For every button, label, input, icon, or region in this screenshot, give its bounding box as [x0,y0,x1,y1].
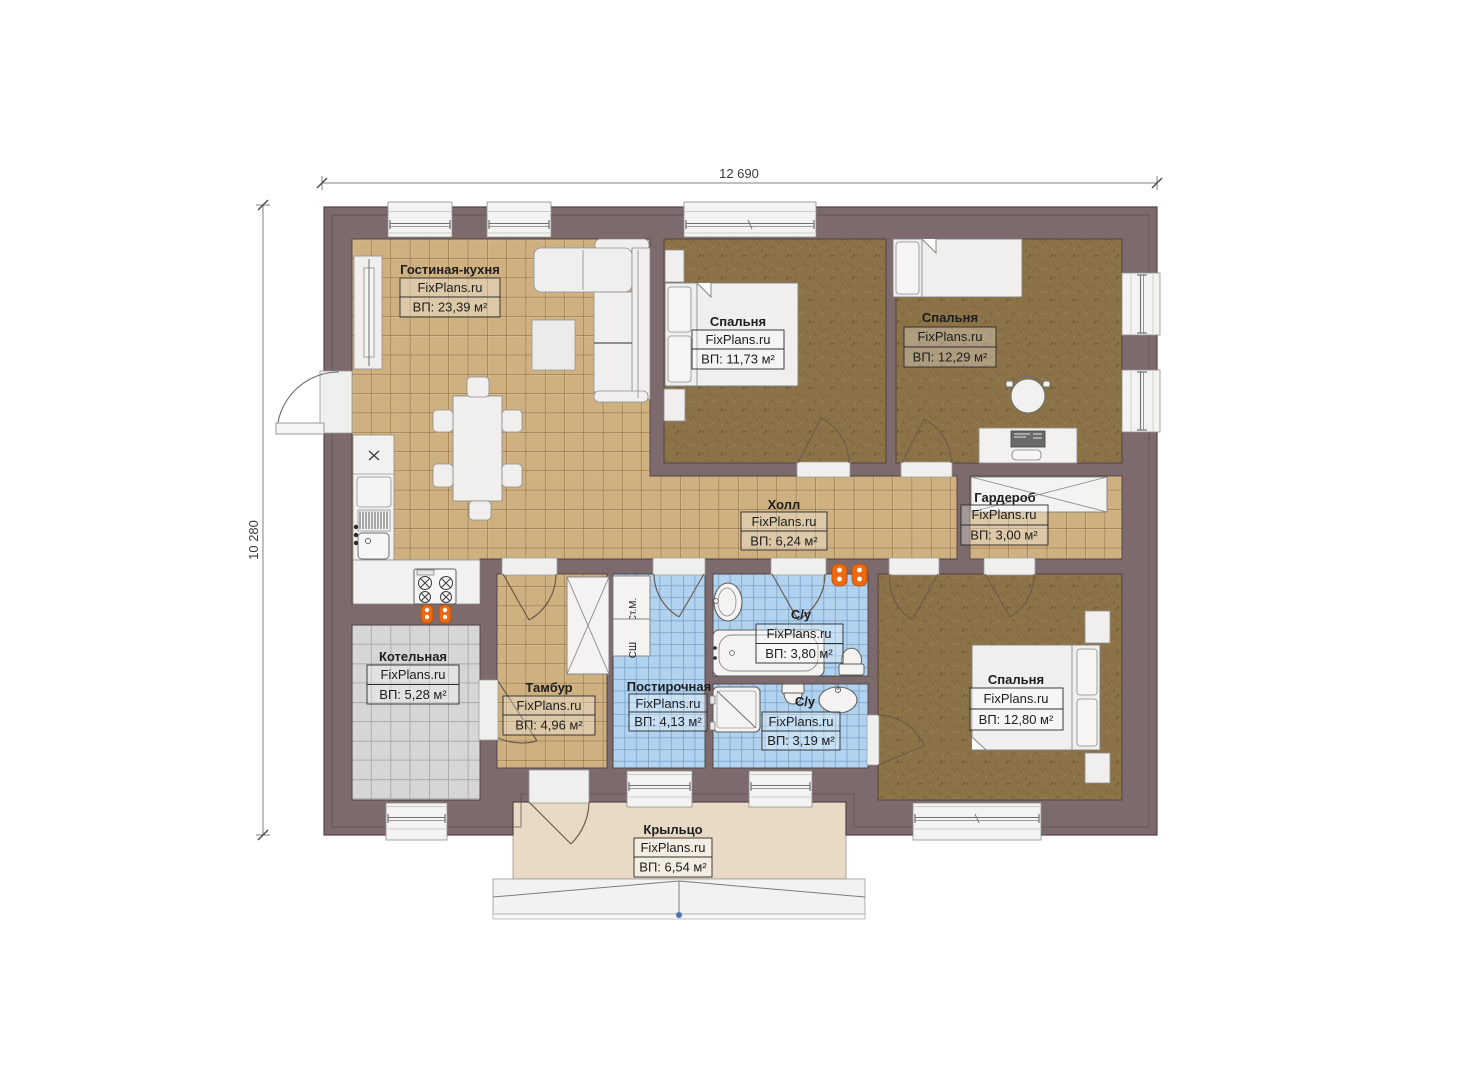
svg-text:ВП: 12,29 м²: ВП: 12,29 м² [913,350,988,365]
svg-text:ВП: 3,00 м²: ВП: 3,00 м² [970,528,1038,543]
svg-text:ВП: 4,13 м²: ВП: 4,13 м² [634,714,702,729]
svg-text:FixPlans.ru: FixPlans.ru [640,840,705,855]
svg-text:ВП: 6,54 м²: ВП: 6,54 м² [639,860,707,875]
svg-text:FixPlans.ru: FixPlans.ru [635,696,700,711]
svg-text:ВП: 12,80 м²: ВП: 12,80 м² [979,712,1054,727]
svg-text:Гостиная-кухня: Гостиная-кухня [400,262,500,277]
svg-text:12 690: 12 690 [719,166,759,181]
svg-text:FixPlans.ru: FixPlans.ru [751,514,816,529]
svg-text:ВП: 4,96 м²: ВП: 4,96 м² [515,718,583,733]
svg-text:ВП: 3,19 м²: ВП: 3,19 м² [767,733,835,748]
svg-text:Котельная: Котельная [379,649,447,664]
svg-text:ВП: 5,28 м²: ВП: 5,28 м² [379,687,447,702]
svg-text:FixPlans.ru: FixPlans.ru [516,698,581,713]
svg-text:FixPlans.ru: FixPlans.ru [768,714,833,729]
svg-text:FixPlans.ru: FixPlans.ru [380,667,445,682]
svg-text:Спальня: Спальня [922,310,978,325]
svg-text:FixPlans.ru: FixPlans.ru [417,280,482,295]
svg-text:Спальня: Спальня [710,314,766,329]
svg-text:С/у: С/у [795,694,816,709]
svg-text:FixPlans.ru: FixPlans.ru [766,626,831,641]
svg-text:Спальня: Спальня [988,672,1044,687]
svg-text:СШ: СШ [628,642,639,658]
svg-text:Постирочная: Постирочная [627,679,711,694]
svg-text:ВП: 11,73 м²: ВП: 11,73 м² [701,352,775,367]
svg-text:FixPlans.ru: FixPlans.ru [983,691,1048,706]
svg-text:С/у: С/у [791,607,812,622]
svg-text:Гардероб: Гардероб [974,490,1035,505]
svg-text:10 280: 10 280 [246,520,261,560]
svg-text:Тамбур: Тамбур [525,680,572,695]
svg-text:FixPlans.ru: FixPlans.ru [917,329,982,344]
svg-text:ВП: 6,24 м²: ВП: 6,24 м² [750,534,818,549]
svg-text:Холл: Холл [768,497,801,512]
svg-text:ВП: 3,80 м²: ВП: 3,80 м² [765,646,833,661]
svg-text:FixPlans.ru: FixPlans.ru [705,332,770,347]
svg-text:ВП: 23,39 м²: ВП: 23,39 м² [413,300,488,315]
svg-text:Крыльцо: Крыльцо [643,822,702,837]
svg-text:FixPlans.ru: FixPlans.ru [971,507,1036,522]
